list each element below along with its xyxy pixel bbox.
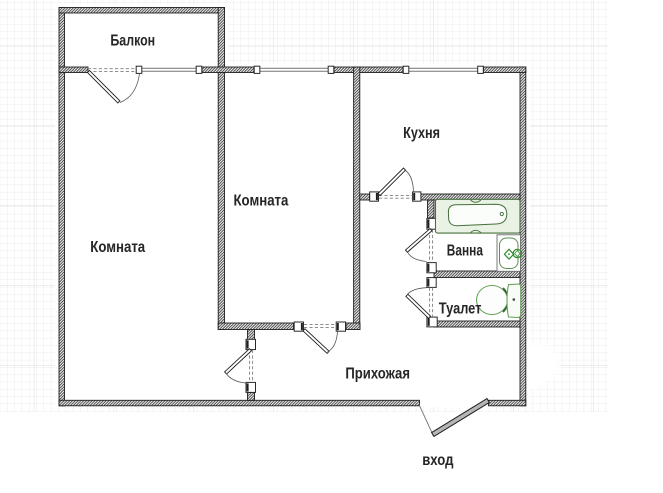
svg-text:Кухня: Кухня — [403, 125, 440, 143]
svg-text:Туалет: Туалет — [439, 300, 482, 318]
svg-text:Комната: Комната — [234, 192, 290, 209]
svg-text:Балкон: Балкон — [110, 32, 155, 50]
svg-text:Ванна: Ванна — [447, 241, 483, 259]
svg-text:вход: вход — [422, 452, 453, 469]
svg-text:Комната: Комната — [90, 239, 146, 256]
svg-text:Прихожая: Прихожая — [345, 365, 410, 382]
